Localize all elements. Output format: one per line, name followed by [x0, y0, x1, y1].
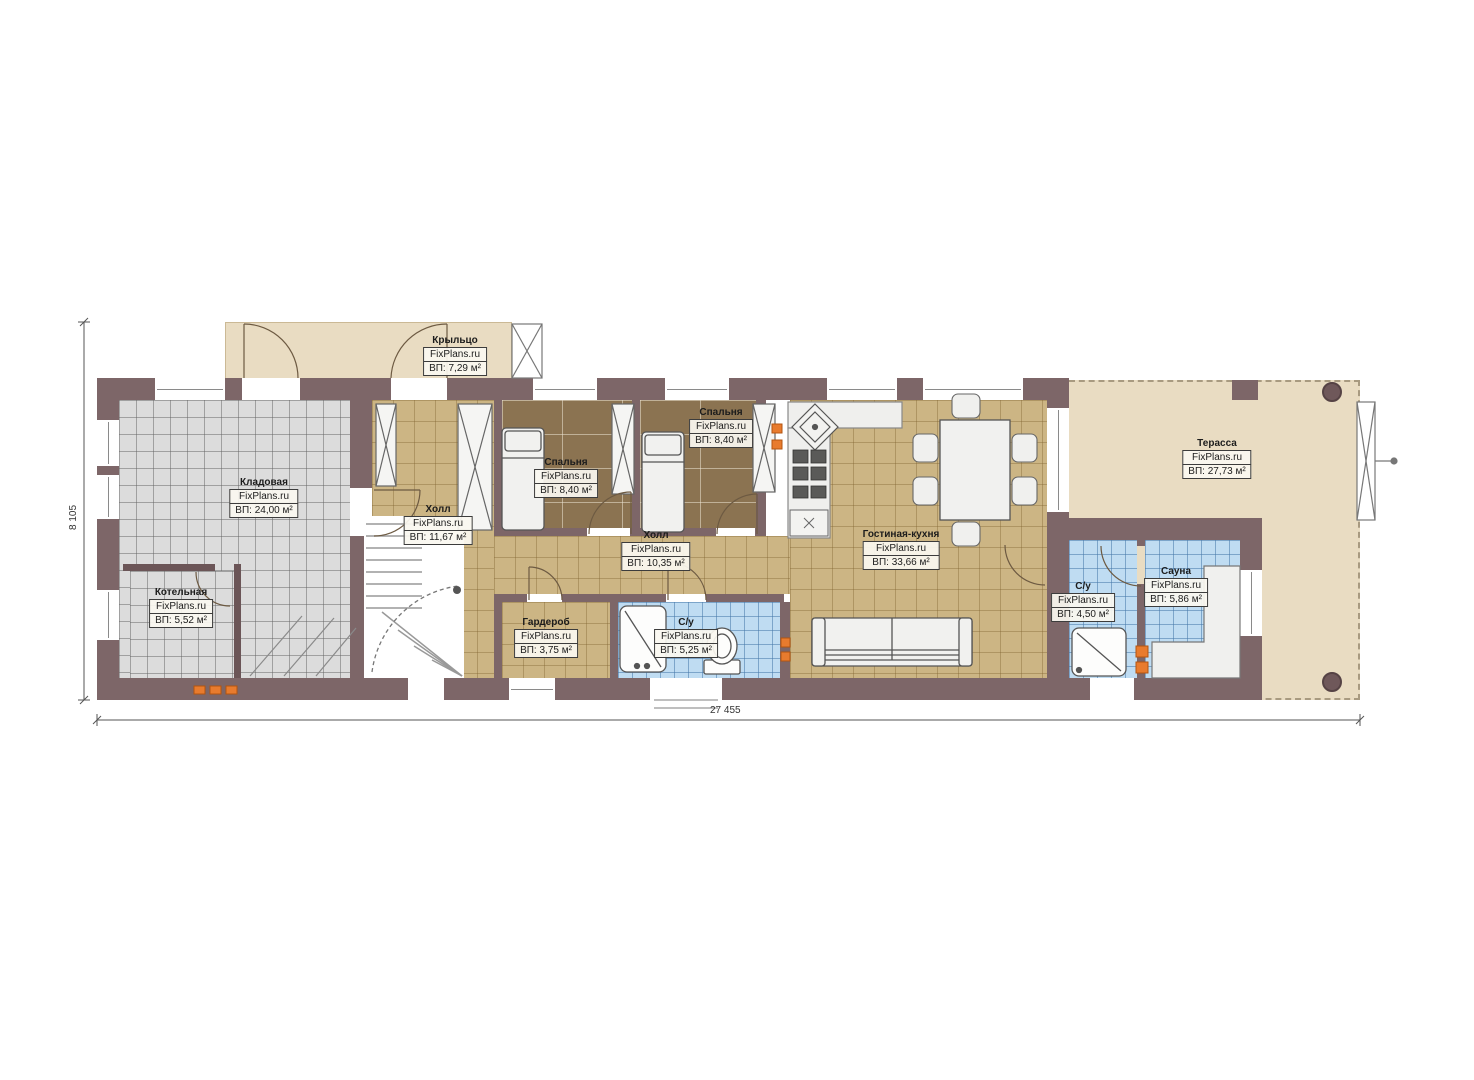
brand-watermark: FixPlans.ru	[149, 599, 213, 614]
brand-watermark: FixPlans.ru	[423, 347, 487, 362]
room-area: ВП: 33,66 м²	[863, 555, 940, 570]
brand-watermark: FixPlans.ru	[1144, 578, 1208, 593]
terrace-column	[1322, 672, 1342, 692]
brand-watermark: FixPlans.ru	[514, 629, 578, 644]
wall-bottom	[97, 678, 1069, 700]
terrace-glass-door	[1047, 408, 1069, 512]
window	[827, 378, 897, 400]
room-name: Кладовая	[229, 476, 298, 489]
window	[1240, 570, 1262, 636]
wall-wardrobe-bath1	[610, 602, 618, 678]
room-area: ВП: 8,40 м²	[689, 433, 753, 448]
floor-plan: Крыльцо FixPlans.ru ВП: 7,29 м² Кладовая…	[0, 0, 1474, 1080]
boiler-wall-right	[234, 564, 241, 678]
wall-storage-hall	[350, 536, 372, 678]
room-name: Сауна	[1144, 565, 1208, 578]
brand-watermark: FixPlans.ru	[621, 542, 690, 557]
room-name: Холл	[404, 503, 473, 516]
window	[97, 590, 119, 640]
room-name: Спальня	[534, 456, 598, 469]
room-label-terrace: Терасса FixPlans.ru ВП: 27,73 м²	[1182, 437, 1251, 479]
wall-corridor-bath1	[706, 594, 784, 602]
brand-watermark: FixPlans.ru	[229, 489, 298, 504]
room-area: ВП: 24,00 м²	[229, 503, 298, 518]
room-label-hall2: Холл FixPlans.ru ВП: 10,35 м²	[621, 529, 690, 571]
room-label-porch: Крыльцо FixPlans.ru ВП: 7,29 м²	[423, 334, 487, 376]
brand-watermark: FixPlans.ru	[654, 629, 718, 644]
sauna-floor	[1145, 540, 1240, 678]
room-name: Гостиная-кухня	[863, 528, 940, 541]
room-name: С/у	[1051, 580, 1115, 593]
room-area: ВП: 3,75 м²	[514, 643, 578, 658]
window	[155, 378, 225, 400]
wall-corridor-bath1	[562, 594, 666, 602]
sauna-block-wall-top	[1069, 518, 1262, 540]
wall-storage-hall	[350, 400, 372, 488]
wall-bedrooms-corridor	[755, 528, 766, 536]
room-area: ВП: 5,52 м²	[149, 613, 213, 628]
brand-watermark: FixPlans.ru	[1182, 450, 1251, 465]
room-label-bedroom2: Спальня FixPlans.ru ВП: 8,40 м²	[689, 406, 753, 448]
room-label-bath1: С/у FixPlans.ru ВП: 5,25 м²	[654, 616, 718, 658]
room-area: ВП: 10,35 м²	[621, 556, 690, 571]
room-label-sauna: Сауна FixPlans.ru ВП: 5,86 м²	[1144, 565, 1208, 607]
terrace-wall-stub	[1232, 380, 1258, 400]
room-area: ВП: 5,25 м²	[654, 643, 718, 658]
door-opening	[1090, 678, 1134, 700]
window	[923, 378, 1023, 400]
porch-window	[512, 324, 542, 378]
wall-hall-bedroom1	[494, 400, 502, 536]
window	[97, 420, 119, 466]
room-label-living: Гостиная-кухня FixPlans.ru ВП: 33,66 м²	[863, 528, 940, 570]
boiler-wall-top	[123, 564, 215, 571]
room-label-storage: Кладовая FixPlans.ru ВП: 24,00 м²	[229, 476, 298, 518]
brand-watermark: FixPlans.ru	[534, 469, 598, 484]
room-name: Терасса	[1182, 437, 1251, 450]
room-name: Гардероб	[514, 616, 578, 629]
dimension-width: 27 455	[710, 705, 741, 716]
window	[97, 475, 119, 519]
room-area: ВП: 8,40 м²	[534, 483, 598, 498]
window	[533, 378, 597, 400]
brand-watermark: FixPlans.ru	[1051, 593, 1115, 608]
room-area: ВП: 11,67 м²	[404, 530, 473, 545]
brand-watermark: FixPlans.ru	[863, 541, 940, 556]
door-opening	[242, 378, 300, 400]
wall-corridor-wardrobe	[494, 594, 527, 602]
terrace-column	[1322, 382, 1342, 402]
room-area: ВП: 27,73 м²	[1182, 464, 1251, 479]
terrace-window-symbol	[1357, 402, 1397, 520]
wall-bedroom2-living	[756, 400, 766, 536]
room-label-bedroom1: Спальня FixPlans.ru ВП: 8,40 м²	[534, 456, 598, 498]
window	[509, 678, 555, 700]
room-name: С/у	[654, 616, 718, 629]
room-label-boiler: Котельная FixPlans.ru ВП: 5,52 м²	[149, 586, 213, 628]
wall-wardrobe-left	[494, 602, 502, 678]
wall-bath1-living	[780, 602, 790, 678]
room-label-bath2: С/у FixPlans.ru ВП: 4,50 м²	[1051, 580, 1115, 622]
wall-bedrooms-corridor	[494, 528, 587, 536]
room-name: Крыльцо	[423, 334, 487, 347]
room-area: ВП: 4,50 м²	[1051, 607, 1115, 622]
room-area: ВП: 5,86 м²	[1144, 592, 1208, 607]
window	[665, 378, 729, 400]
wall-bath2-sauna	[1137, 540, 1145, 546]
room-label-hall1: Холл FixPlans.ru ВП: 11,67 м²	[404, 503, 473, 545]
room-area: ВП: 7,29 м²	[423, 361, 487, 376]
room-label-wardrobe: Гардероб FixPlans.ru ВП: 3,75 м²	[514, 616, 578, 658]
brand-watermark: FixPlans.ru	[404, 516, 473, 531]
room-name: Котельная	[149, 586, 213, 599]
dimension-height: 8 105	[68, 505, 79, 530]
brand-watermark: FixPlans.ru	[689, 419, 753, 434]
door-opening	[408, 678, 444, 700]
wall-bedroom1-bedroom2	[632, 400, 640, 536]
entry-door-opening	[391, 378, 447, 400]
room-name: Холл	[621, 529, 690, 542]
room-name: Спальня	[689, 406, 753, 419]
